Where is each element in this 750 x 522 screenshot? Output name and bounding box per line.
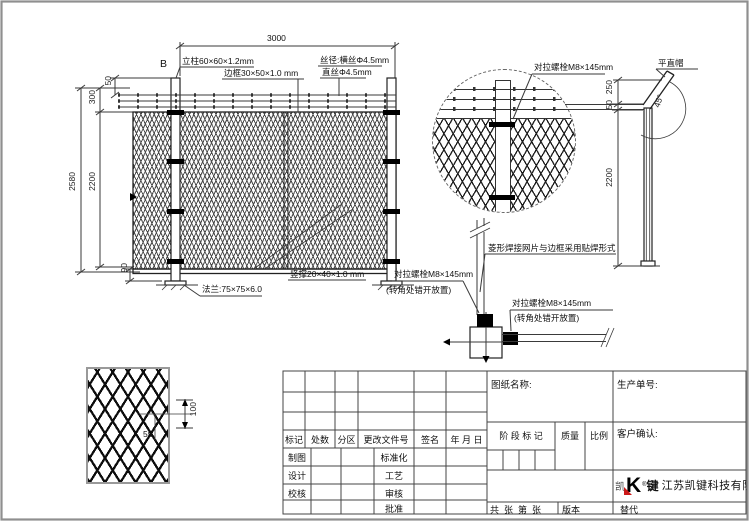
drawing-name-label: 图纸名称: [491,377,532,391]
scale-label: 比例 [585,429,613,442]
dim-total-height: 2580 [67,172,77,191]
company-name: 江苏凯键科技有限公司 [662,477,747,493]
post-spec-label: 立柱60×60×1.2mm [182,56,254,66]
rev-header-zone: 分区 [335,433,358,446]
drawing-sheet: 3000 B 立柱60×60×1.2mm 边框30×50×1.0 mm 丝径:横… [0,0,750,522]
production-order-label: 生产单号: [617,377,658,391]
dim-overall-width: 3000 [267,33,286,43]
dim-arm-length: 250 [604,80,614,94]
role-standardize: 标准化 [374,451,414,464]
wire-dia-label: 丝径:横丝Φ4.5mm [320,55,389,65]
role-review: 审核 [374,487,414,500]
stage-mark-label: 阶 段 标 记 [489,429,553,442]
company-logo: 凯 K ® 键 江苏凯键科技有限公司 [615,470,747,500]
frame-spec-label: 边框30×50×1.0 mm [224,68,298,78]
rev-header-count: 处数 [305,433,335,446]
dim-bottom-gap: 90 [119,263,129,272]
logo-red-accent [624,487,632,495]
brace-spec-label: 竖撑20×40×1.0 mm [290,269,364,279]
role-draft: 制图 [283,451,311,464]
role-check: 校核 [283,487,311,500]
mesh-opening-height: 100 [188,402,198,416]
cap-label: 平直帽 [658,58,684,68]
role-process: 工艺 [374,469,414,482]
section-bolt-note-right: (转角处错开放置) [514,313,579,323]
section-weld-note: 菱形焊接网片与边框采用贴焊形式 [488,243,616,253]
logo-k-icon: K [626,475,641,496]
rev-header-change-doc: 更改文件号 [358,433,414,446]
role-approve: 批准 [374,502,414,515]
dim-side-post-height: 2200 [604,168,614,187]
weight-label: 质量 [555,429,585,442]
detail-marker-b: B [160,59,167,69]
plan-section-linework [443,218,616,363]
circle-bolt-label: 对拉螺栓M8×145mm [534,62,613,72]
version-label: 版本 [562,503,580,516]
mesh-opening-width: 55 [143,429,152,439]
flange-spec-label: 法兰:75×75×6.0 [202,284,262,294]
section-bolt-label-right: 对拉螺栓M8×145mm [512,298,591,308]
dim-wire-spacing: 50 [103,76,113,85]
rev-header-mark: 标记 [283,433,305,446]
section-bolt-note-left: (转角处错开放置) [386,285,451,295]
substitute-label: 替代 [620,503,638,516]
rev-header-signature: 签名 [414,433,446,446]
dim-top-section: 300 [87,90,97,104]
detail-circle-leader [513,74,605,119]
customer-confirm-label: 客户确认: [617,426,658,440]
logo-right-char: 键 [647,477,659,494]
rev-header-date: 年 月 日 [446,433,487,446]
role-design: 设计 [283,469,311,482]
section-bolt-label-left: 对拉螺栓M8×145mm [394,269,473,279]
post-side-view-linework [565,69,698,269]
straight-wire-label: 直丝Φ4.5mm [322,67,372,77]
dim-mesh-height: 2200 [87,172,97,191]
sheet-count-label: 共 张 第 张 [490,503,541,516]
dim-side-wire-gap: 50 [604,100,614,109]
